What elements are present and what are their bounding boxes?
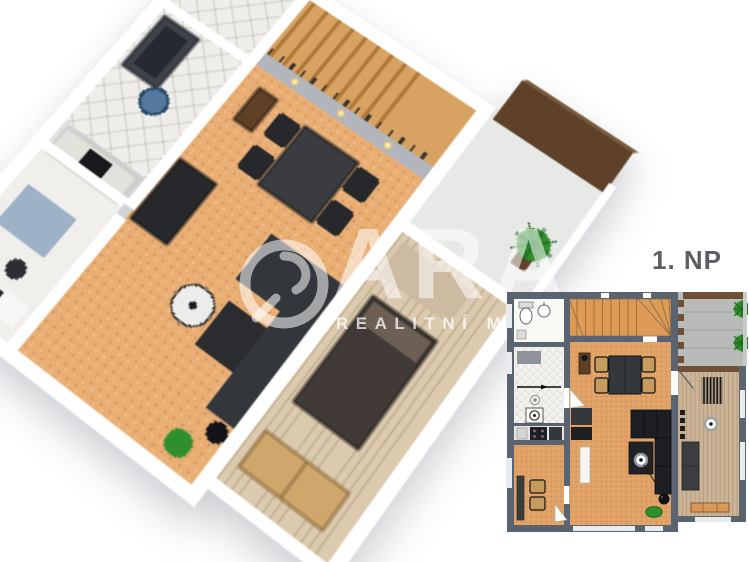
kitchen-sink (517, 428, 527, 439)
bath-mat (517, 351, 541, 364)
terrace-floor (678, 292, 743, 366)
radiator (580, 447, 590, 483)
toilet-tank (519, 302, 533, 308)
dining-chair (595, 378, 608, 393)
office-chair (530, 480, 545, 493)
kitchen-tall-unit (571, 408, 592, 425)
office-desk (517, 476, 524, 520)
plant (646, 507, 662, 518)
dining-chair (642, 357, 655, 372)
floors-2d (514, 292, 743, 525)
floor-label: 1. NP (652, 245, 722, 276)
cooktop (530, 427, 547, 440)
floorplan-page: ARA REALITNÍ MA 1. NP (0, 0, 749, 562)
office-chair (530, 497, 545, 510)
bench (691, 503, 729, 512)
floorplan-2d-view (505, 290, 748, 533)
wc-sink (538, 305, 550, 317)
toilet (520, 308, 532, 324)
dining-chair (595, 357, 608, 372)
floor-ball (659, 494, 670, 505)
dining-chair (642, 378, 655, 393)
sofa (655, 410, 671, 494)
